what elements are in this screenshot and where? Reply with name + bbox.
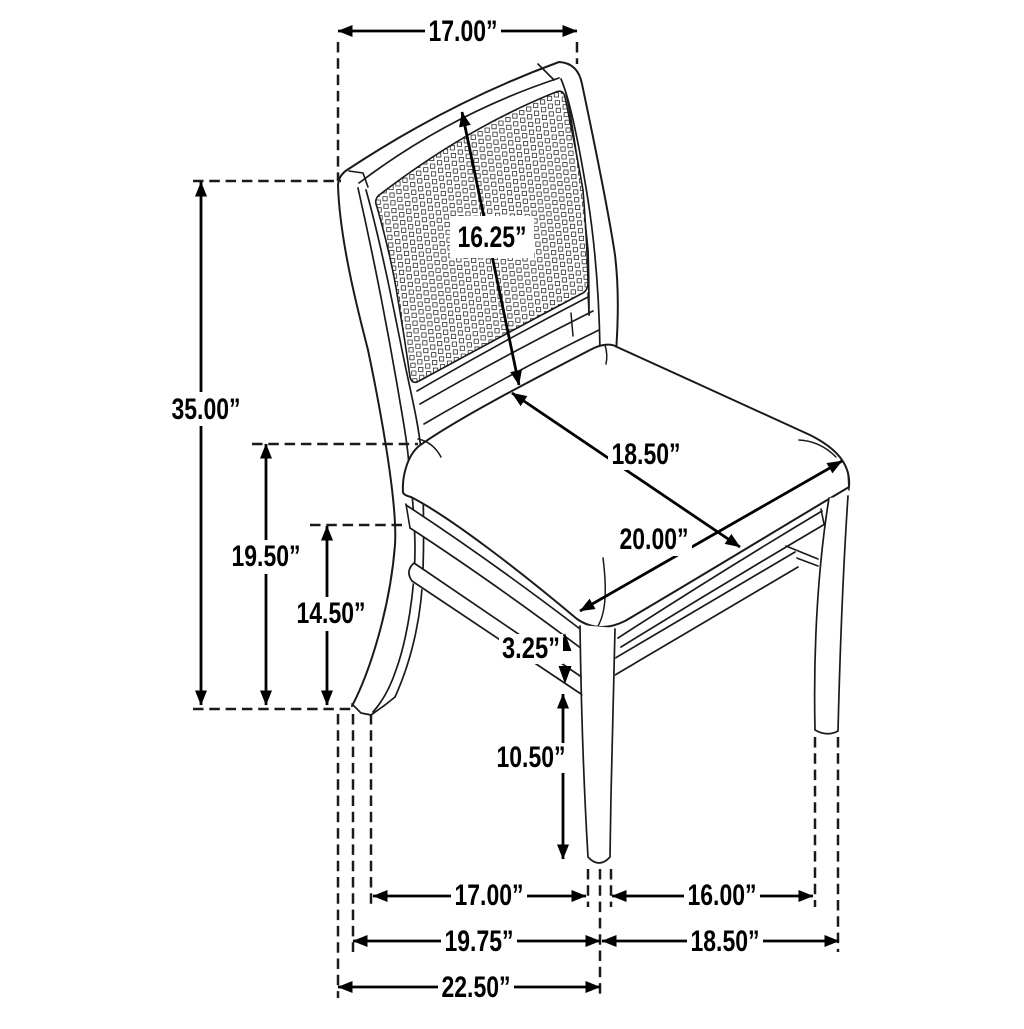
svg-text:19.50”: 19.50” bbox=[232, 540, 301, 573]
svg-text:16.00”: 16.00” bbox=[688, 879, 757, 912]
svg-text:20.00”: 20.00” bbox=[620, 523, 689, 556]
svg-text:3.25”: 3.25” bbox=[502, 632, 560, 665]
svg-text:17.00”: 17.00” bbox=[455, 879, 524, 912]
svg-text:22.50”: 22.50” bbox=[442, 971, 511, 1004]
svg-text:18.50”: 18.50” bbox=[612, 438, 681, 471]
svg-text:35.00”: 35.00” bbox=[172, 393, 241, 426]
svg-text:16.25”: 16.25” bbox=[458, 221, 527, 254]
svg-text:19.75”: 19.75” bbox=[445, 925, 514, 958]
svg-text:18.50”: 18.50” bbox=[691, 925, 760, 958]
svg-text:17.00”: 17.00” bbox=[429, 15, 498, 48]
svg-text:10.50”: 10.50” bbox=[497, 741, 566, 774]
svg-text:14.50”: 14.50” bbox=[297, 597, 366, 630]
